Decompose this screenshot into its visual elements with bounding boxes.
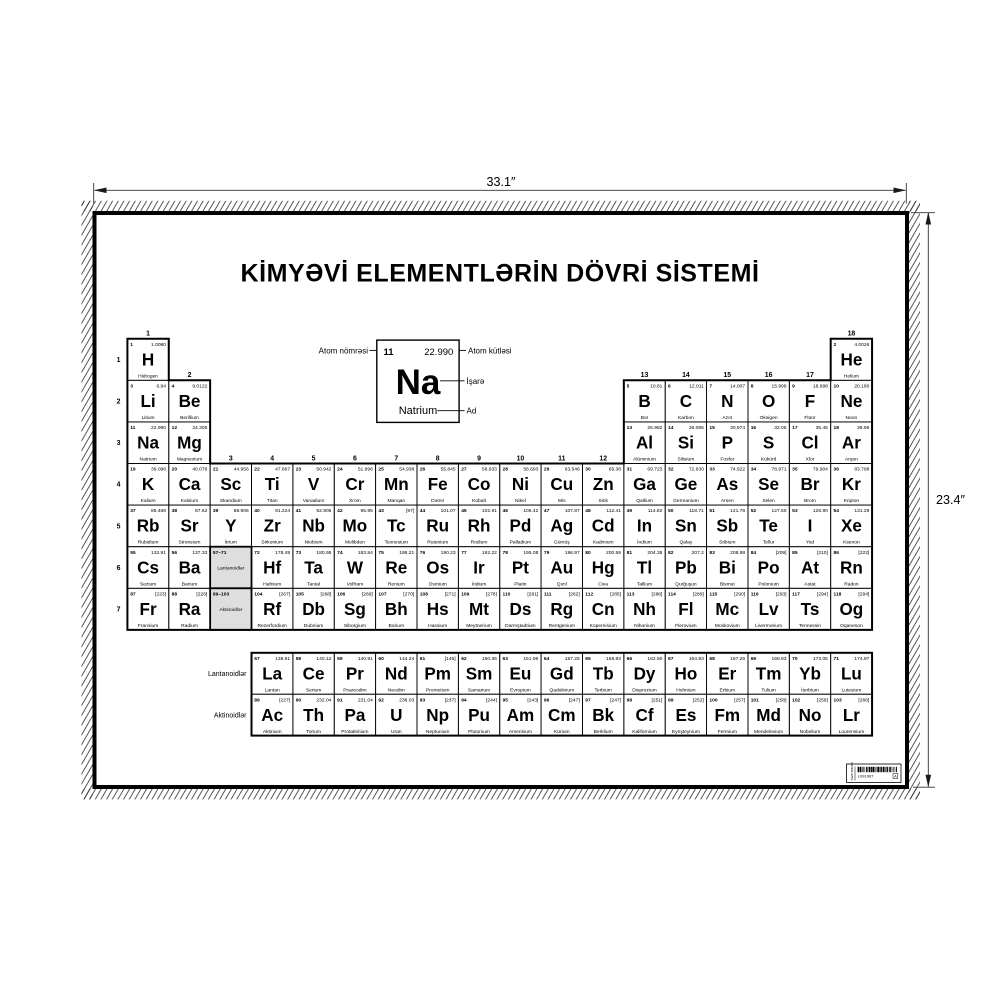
svg-text:131.29: 131.29 <box>854 508 869 514</box>
svg-text:22.990: 22.990 <box>151 425 166 431</box>
svg-text:[257]: [257] <box>734 697 746 703</box>
svg-text:51.996: 51.996 <box>358 467 373 473</box>
svg-text:14: 14 <box>682 372 690 379</box>
svg-text:57: 57 <box>254 656 260 662</box>
svg-text:Sirkonium: Sirkonium <box>261 540 283 546</box>
svg-text:1.0080: 1.0080 <box>151 342 166 348</box>
svg-text:114: 114 <box>668 591 676 597</box>
svg-text:Na: Na <box>396 363 441 402</box>
svg-text:Niobium: Niobium <box>305 540 323 546</box>
svg-text:91.224: 91.224 <box>275 508 290 514</box>
svg-text:30: 30 <box>585 467 591 473</box>
svg-text:7: 7 <box>117 607 121 614</box>
svg-text:80: 80 <box>585 550 591 556</box>
svg-text:151.96: 151.96 <box>523 656 538 662</box>
svg-text:7: 7 <box>709 383 712 389</box>
svg-text:118.71: 118.71 <box>689 508 704 514</box>
svg-text:Er: Er <box>718 664 736 683</box>
svg-text:87: 87 <box>130 591 136 597</box>
svg-text:Tulium: Tulium <box>761 687 776 693</box>
svg-text:9: 9 <box>792 383 795 389</box>
svg-text:Qalay: Qalay <box>680 540 693 546</box>
svg-text:4: 4 <box>270 455 274 462</box>
svg-text:117: 117 <box>792 591 800 597</box>
svg-text:U: U <box>390 706 402 725</box>
svg-text:44.956: 44.956 <box>234 467 249 473</box>
svg-text:190.23: 190.23 <box>441 550 456 556</box>
svg-text:Neodim: Neodim <box>388 687 405 693</box>
svg-text:Kobalt: Kobalt <box>472 498 487 504</box>
svg-text:Bk: Bk <box>592 706 614 725</box>
svg-text:Cu: Cu <box>550 475 573 494</box>
svg-text:Be: Be <box>179 392 201 411</box>
svg-text:Nd: Nd <box>385 664 408 683</box>
svg-text:P: P <box>722 434 733 453</box>
svg-text:Rodium: Rodium <box>471 540 488 546</box>
svg-text:22: 22 <box>254 467 260 473</box>
svg-text:110: 110 <box>503 591 511 597</box>
svg-text:140.91: 140.91 <box>358 656 373 662</box>
svg-text:Ts: Ts <box>801 600 820 619</box>
svg-text:H: H <box>142 350 154 369</box>
svg-text:KİMYƏVİ ELEMENTLƏRİN DÖVRİ SİS: KİMYƏVİ ELEMENTLƏRİN DÖVRİ SİSTEMİ <box>241 259 760 288</box>
svg-text:Moskovium: Moskovium <box>715 623 740 629</box>
svg-text:4: 4 <box>117 482 121 489</box>
svg-text:65.38: 65.38 <box>609 467 622 473</box>
svg-text:[294]: [294] <box>817 591 829 597</box>
svg-text:Ga: Ga <box>633 475 656 494</box>
svg-text:[258]: [258] <box>776 697 788 703</box>
svg-text:Hs: Hs <box>427 600 449 619</box>
svg-text:Borium: Borium <box>389 623 405 629</box>
svg-text:127.60: 127.60 <box>772 508 787 514</box>
svg-text:Brom: Brom <box>804 498 816 504</box>
svg-text:62: 62 <box>461 656 467 662</box>
svg-text:108: 108 <box>420 591 428 597</box>
svg-text:13: 13 <box>641 372 649 379</box>
svg-text:178.49: 178.49 <box>275 550 290 556</box>
svg-text:32.06: 32.06 <box>774 425 787 431</box>
svg-text:10.81: 10.81 <box>650 383 663 389</box>
svg-text:42: 42 <box>337 508 343 514</box>
svg-text:12: 12 <box>172 425 178 431</box>
svg-text:90: 90 <box>296 697 302 703</box>
svg-text:[269]: [269] <box>362 591 374 597</box>
svg-text:Ni: Ni <box>512 475 529 494</box>
svg-text:Xe: Xe <box>841 517 862 536</box>
svg-text:Br: Br <box>801 475 820 494</box>
svg-text:Ar: Ar <box>842 434 861 453</box>
svg-text:7: 7 <box>394 455 398 462</box>
svg-text:54.938: 54.938 <box>399 467 414 473</box>
svg-text:Titan: Titan <box>267 498 278 504</box>
svg-text:Cl: Cl <box>801 434 818 453</box>
svg-text:Meytnerium: Meytnerium <box>466 623 492 629</box>
svg-text:200.59: 200.59 <box>606 550 621 556</box>
svg-text:Eu: Eu <box>509 664 531 683</box>
svg-text:84: 84 <box>751 550 757 556</box>
svg-text:14: 14 <box>668 425 674 431</box>
svg-text:Nihonium: Nihonium <box>634 623 655 629</box>
svg-text:As: As <box>716 475 738 494</box>
svg-text:168.93: 168.93 <box>772 656 787 662</box>
svg-text:10: 10 <box>517 455 525 462</box>
svg-text:Nobelium: Nobelium <box>800 729 821 735</box>
svg-text:96: 96 <box>544 697 550 703</box>
svg-text:[293]: [293] <box>776 591 788 597</box>
svg-text:Ca: Ca <box>179 475 201 494</box>
svg-text:Arsen: Arsen <box>721 498 734 504</box>
svg-text:Ra: Ra <box>179 600 201 619</box>
svg-text:[294]: [294] <box>858 591 870 597</box>
svg-text:102.91: 102.91 <box>482 508 497 514</box>
svg-text:99: 99 <box>668 697 674 703</box>
svg-text:Nh: Nh <box>633 600 656 619</box>
svg-text:115: 115 <box>709 591 717 597</box>
svg-text:3: 3 <box>117 440 121 447</box>
svg-text:Texnesium: Texnesium <box>385 540 408 546</box>
svg-text:61: 61 <box>420 656 426 662</box>
svg-text:Natrium: Natrium <box>399 405 438 417</box>
svg-text:116: 116 <box>751 591 759 597</box>
svg-text:Cr: Cr <box>345 475 364 494</box>
svg-text:18.998: 18.998 <box>813 383 828 389</box>
svg-text:Neptunium: Neptunium <box>426 729 450 735</box>
svg-text:Bi: Bi <box>719 558 736 577</box>
svg-text:Disprozium: Disprozium <box>632 687 656 693</box>
svg-text:26.982: 26.982 <box>647 425 662 431</box>
svg-text:Gümüş: Gümüş <box>554 540 570 546</box>
svg-text:Ru: Ru <box>426 517 449 536</box>
svg-text:Rh: Rh <box>468 517 491 536</box>
svg-text:At: At <box>801 558 819 577</box>
svg-text:41: 41 <box>296 508 302 514</box>
svg-text:Selen: Selen <box>762 498 775 504</box>
svg-text:208.98: 208.98 <box>730 550 745 556</box>
svg-text:Lourensium: Lourensium <box>839 729 865 735</box>
svg-text:Fosfor: Fosfor <box>720 457 734 463</box>
svg-text:65: 65 <box>585 656 591 662</box>
svg-text:Au: Au <box>550 558 573 577</box>
svg-text:6: 6 <box>353 455 357 462</box>
svg-text:Kalium: Kalium <box>141 498 156 504</box>
svg-text:25: 25 <box>378 467 384 473</box>
svg-text:Berillium: Berillium <box>180 415 199 421</box>
svg-text:47.867: 47.867 <box>275 467 290 473</box>
svg-text:73: 73 <box>296 550 302 556</box>
svg-text:6: 6 <box>668 383 671 389</box>
svg-text:[285]: [285] <box>610 591 622 597</box>
svg-text:Berklium: Berklium <box>594 729 613 735</box>
svg-text:Mis: Mis <box>558 498 566 504</box>
svg-text:4: 4 <box>172 383 175 389</box>
svg-text:[247]: [247] <box>610 697 622 703</box>
svg-text:35: 35 <box>792 467 798 473</box>
svg-text:39.95: 39.95 <box>857 425 870 431</box>
svg-text:72: 72 <box>254 550 260 556</box>
svg-text:126.90: 126.90 <box>813 508 828 514</box>
svg-text:121.76: 121.76 <box>730 508 745 514</box>
svg-text:11: 11 <box>558 455 565 462</box>
svg-text:140.12: 140.12 <box>316 656 331 662</box>
svg-text:39: 39 <box>213 508 219 514</box>
svg-text:Litium: Litium <box>142 415 155 421</box>
svg-text:Sn: Sn <box>675 517 697 536</box>
svg-text:Rg: Rg <box>550 600 573 619</box>
svg-text:[286]: [286] <box>652 591 664 597</box>
svg-text:35.45: 35.45 <box>816 425 829 431</box>
svg-text:Yod: Yod <box>806 540 815 546</box>
svg-text:Manqan: Manqan <box>387 498 405 504</box>
svg-text:Rb: Rb <box>137 517 160 536</box>
svg-text:Kadmium: Kadmium <box>593 540 614 546</box>
svg-text:Civə: Civə <box>598 581 608 587</box>
svg-text:1: 1 <box>130 342 133 348</box>
svg-text:He: He <box>840 350 862 369</box>
svg-text:15: 15 <box>709 425 715 431</box>
svg-text:Plutonium: Plutonium <box>468 729 490 735</box>
svg-text:50: 50 <box>668 508 674 514</box>
svg-text:Co: Co <box>468 475 491 494</box>
svg-text:3: 3 <box>130 383 133 389</box>
svg-text:Kükürd: Kükürd <box>761 457 777 463</box>
svg-text:[267]: [267] <box>279 591 291 597</box>
svg-text:Se: Se <box>758 475 779 494</box>
svg-text:Pd: Pd <box>509 517 531 536</box>
svg-text:186.21: 186.21 <box>399 550 414 556</box>
svg-text:Os: Os <box>426 558 449 577</box>
svg-text:48: 48 <box>585 508 591 514</box>
svg-text:32: 32 <box>668 467 674 473</box>
svg-text:55: 55 <box>130 550 136 556</box>
svg-text:Uran: Uran <box>391 729 402 735</box>
svg-text:17: 17 <box>806 372 814 379</box>
svg-text:SWIFTMAPS: SWIFTMAPS <box>850 762 854 780</box>
svg-text:232.04: 232.04 <box>316 697 331 703</box>
svg-text:Qurğuşun: Qurğuşun <box>675 581 697 587</box>
svg-text:31: 31 <box>627 467 633 473</box>
svg-text:Ksenon: Ksenon <box>843 540 860 546</box>
svg-text:Mg: Mg <box>177 434 202 453</box>
svg-text:54: 54 <box>834 508 840 514</box>
svg-text:Germanium: Germanium <box>673 498 699 504</box>
svg-text:Azot: Azot <box>722 415 732 421</box>
svg-text:Dubnium: Dubnium <box>304 623 324 629</box>
svg-text:Erbium: Erbium <box>720 687 736 693</box>
svg-text:26: 26 <box>420 467 426 473</box>
svg-text:Neon: Neon <box>846 415 858 421</box>
svg-text:Bh: Bh <box>385 600 408 619</box>
svg-text:83.798: 83.798 <box>854 467 869 473</box>
svg-text:Ag: Ag <box>550 517 573 536</box>
svg-text:Nb: Nb <box>302 517 325 536</box>
svg-text:19: 19 <box>130 467 136 473</box>
svg-text:Atom kütləsi: Atom kütləsi <box>468 346 512 355</box>
svg-text:Ge: Ge <box>674 475 697 494</box>
svg-text:82: 82 <box>668 550 674 556</box>
svg-text:10: 10 <box>834 383 840 389</box>
svg-text:Md: Md <box>756 706 781 725</box>
svg-text:Ti: Ti <box>265 475 280 494</box>
svg-text:Lantan: Lantan <box>265 687 280 693</box>
svg-text:Polonium: Polonium <box>758 581 778 587</box>
svg-text:78.971: 78.971 <box>772 467 787 473</box>
svg-text:Lr: Lr <box>843 706 860 725</box>
svg-text:Lutesium: Lutesium <box>841 687 861 693</box>
svg-text:Kripton: Kripton <box>844 498 860 504</box>
svg-text:13: 13 <box>627 425 633 431</box>
svg-text:15: 15 <box>723 372 731 379</box>
svg-text:60: 60 <box>378 656 384 662</box>
svg-text:33.1″: 33.1″ <box>487 175 517 189</box>
svg-text:29: 29 <box>544 467 550 473</box>
svg-text:Sink: Sink <box>598 498 608 504</box>
svg-text:[237]: [237] <box>445 697 457 703</box>
svg-text:Pa: Pa <box>344 706 365 725</box>
svg-text:Y: Y <box>225 517 237 536</box>
svg-text:No: No <box>799 706 822 725</box>
svg-text:144.24: 144.24 <box>399 656 414 662</box>
svg-text:Tc: Tc <box>387 517 406 536</box>
svg-text:Sb: Sb <box>716 517 738 536</box>
svg-text:Li: Li <box>140 392 155 411</box>
svg-text:89–103: 89–103 <box>213 591 230 597</box>
svg-text:69: 69 <box>751 656 757 662</box>
svg-text:74.922: 74.922 <box>730 467 745 473</box>
svg-text:Tl: Tl <box>637 558 652 577</box>
svg-text:Oksigen: Oksigen <box>760 415 778 421</box>
svg-text:Ho: Ho <box>675 664 698 683</box>
svg-text:I: I <box>808 517 813 536</box>
svg-text:Mt: Mt <box>469 600 489 619</box>
svg-text:Darmştadtium: Darmştadtium <box>505 623 535 629</box>
svg-text:138.91: 138.91 <box>275 656 290 662</box>
svg-text:17: 17 <box>792 425 798 431</box>
svg-text:78: 78 <box>503 550 509 556</box>
svg-text:Lantanoidlər: Lantanoidlər <box>217 566 244 572</box>
svg-text:85.468: 85.468 <box>151 508 166 514</box>
svg-text:Xlor: Xlor <box>806 457 815 463</box>
svg-text:16: 16 <box>751 425 757 431</box>
svg-text:Silisium: Silisium <box>677 457 694 463</box>
svg-text:158.93: 158.93 <box>606 656 621 662</box>
svg-text:43: 43 <box>378 508 384 514</box>
svg-text:89: 89 <box>254 697 260 703</box>
svg-text:112: 112 <box>585 591 593 597</box>
svg-text:[289]: [289] <box>693 591 705 597</box>
svg-text:69.723: 69.723 <box>647 467 662 473</box>
svg-text:50.942: 50.942 <box>316 467 331 473</box>
svg-text:Ad: Ad <box>467 407 477 416</box>
svg-text:164.93: 164.93 <box>689 656 704 662</box>
svg-text:2: 2 <box>117 399 121 406</box>
svg-text:180.95: 180.95 <box>316 550 331 556</box>
svg-text:İndium: İndium <box>637 539 652 546</box>
svg-text:Ac: Ac <box>261 706 283 725</box>
svg-text:Atom nömrəsi: Atom nömrəsi <box>319 346 369 355</box>
svg-text:[281]: [281] <box>527 591 539 597</box>
svg-text:93: 93 <box>420 697 426 703</box>
svg-text:22.990: 22.990 <box>424 347 453 358</box>
svg-text:94: 94 <box>461 697 467 703</box>
svg-text:Barium: Barium <box>182 581 198 587</box>
svg-text:Eynşteynium: Eynşteynium <box>672 729 700 735</box>
svg-text:[243]: [243] <box>527 697 539 703</box>
svg-text:Pu: Pu <box>468 706 490 725</box>
svg-text:Te: Te <box>759 517 778 536</box>
svg-text:Radium: Radium <box>181 623 198 629</box>
svg-text:Maqnezium: Maqnezium <box>177 457 202 463</box>
svg-text:67: 67 <box>668 656 674 662</box>
svg-text:Cn: Cn <box>592 600 615 619</box>
svg-text:21: 21 <box>213 467 219 473</box>
svg-text:24.305: 24.305 <box>192 425 207 431</box>
svg-text:167.26: 167.26 <box>730 656 745 662</box>
svg-text:Sr: Sr <box>180 517 198 536</box>
svg-text:Prometium: Prometium <box>426 687 450 693</box>
svg-text:231.04: 231.04 <box>358 697 373 703</box>
svg-text:Kalifornium: Kalifornium <box>632 729 656 735</box>
svg-text:8: 8 <box>436 455 440 462</box>
svg-text:64: 64 <box>544 656 550 662</box>
svg-text:Ce: Ce <box>303 664 325 683</box>
svg-text:Ba: Ba <box>179 558 201 577</box>
svg-text:S: S <box>763 434 774 453</box>
svg-text:Vanadium: Vanadium <box>303 498 325 504</box>
svg-text:Lu: Lu <box>841 664 862 683</box>
svg-text:Torium: Torium <box>306 729 321 735</box>
svg-text:V: V <box>308 475 320 494</box>
svg-text:[209]: [209] <box>776 550 788 556</box>
svg-text:Al: Al <box>636 434 653 453</box>
svg-text:[278]: [278] <box>486 591 498 597</box>
svg-text:5: 5 <box>312 455 316 462</box>
svg-text:27: 27 <box>461 467 467 473</box>
svg-text:Cd: Cd <box>592 517 615 536</box>
svg-text:Aktinoidlər: Aktinoidlər <box>214 712 247 719</box>
svg-text:Na: Na <box>137 434 159 453</box>
svg-text:70: 70 <box>792 656 798 662</box>
svg-text:[251]: [251] <box>652 697 664 703</box>
svg-text:28.085: 28.085 <box>689 425 704 431</box>
svg-text:Pr: Pr <box>346 664 364 683</box>
svg-text:106.42: 106.42 <box>523 508 538 514</box>
svg-text:N: N <box>721 392 733 411</box>
svg-text:[97]: [97] <box>406 508 415 514</box>
svg-text:107.87: 107.87 <box>565 508 580 514</box>
svg-text:5: 5 <box>117 523 121 530</box>
svg-text:Bismut: Bismut <box>720 581 736 587</box>
svg-text:192.22: 192.22 <box>482 550 497 556</box>
svg-text:114.82: 114.82 <box>648 508 663 514</box>
svg-text:207.2: 207.2 <box>692 550 705 556</box>
svg-text:75: 75 <box>378 550 384 556</box>
svg-text:53: 53 <box>792 508 798 514</box>
svg-text:106: 106 <box>337 591 345 597</box>
svg-text:Og: Og <box>840 600 864 619</box>
svg-text:Fr: Fr <box>140 600 157 619</box>
svg-text:47: 47 <box>544 508 550 514</box>
svg-text:Cm: Cm <box>548 706 576 725</box>
svg-text:Cf: Cf <box>635 706 653 725</box>
svg-text:Tm: Tm <box>756 664 782 683</box>
svg-text:Fermium: Fermium <box>718 729 737 735</box>
svg-text:18: 18 <box>834 425 840 431</box>
svg-text:20.180: 20.180 <box>854 383 869 389</box>
svg-text:Tennessin: Tennessin <box>799 623 821 629</box>
svg-text:81: 81 <box>627 550 633 556</box>
svg-text:Molibden: Molibden <box>345 540 365 546</box>
